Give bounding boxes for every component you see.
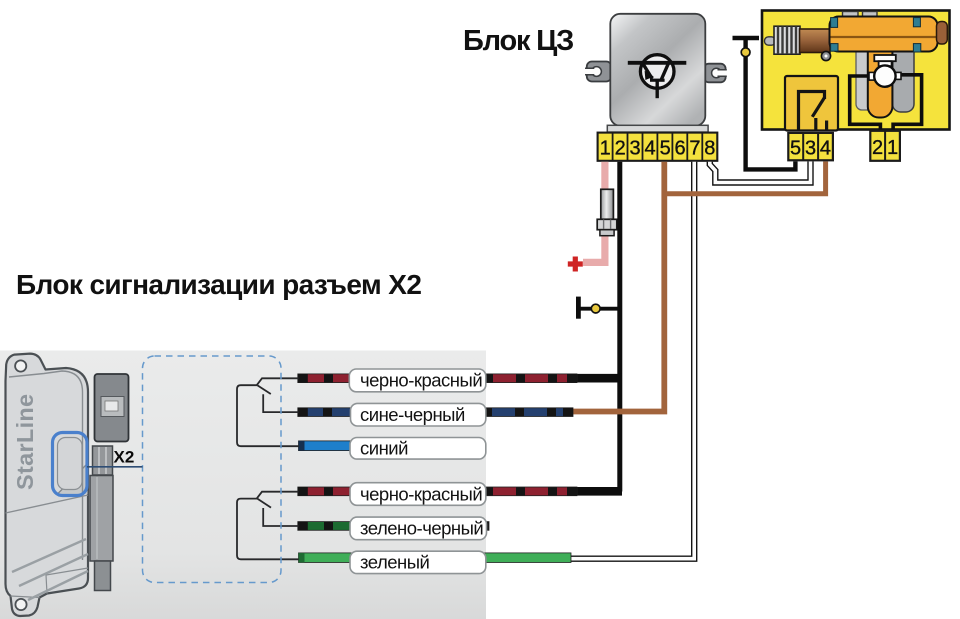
svg-text:2: 2	[615, 138, 626, 160]
svg-text:5: 5	[660, 138, 671, 160]
svg-text:6: 6	[675, 138, 686, 160]
svg-text:Блок ЦЗ: Блок ЦЗ	[463, 25, 573, 57]
svg-text:черно-красный: черно-красный	[360, 483, 482, 504]
svg-text:X2: X2	[114, 448, 135, 467]
svg-text:2: 2	[872, 137, 883, 159]
svg-text:7: 7	[689, 138, 700, 160]
svg-text:черно-красный: черно-красный	[360, 370, 482, 391]
svg-text:зеленый: зеленый	[360, 552, 430, 573]
svg-text:4: 4	[820, 137, 831, 159]
svg-text:8: 8	[704, 138, 715, 160]
svg-text:синий: синий	[360, 438, 408, 459]
svg-text:3: 3	[805, 137, 816, 159]
svg-text:зелено-черный: зелено-черный	[360, 518, 483, 539]
svg-text:3: 3	[630, 138, 641, 160]
svg-text:Блок сигнализации разъем Х2: Блок сигнализации разъем Х2	[16, 269, 421, 300]
svg-text:5: 5	[790, 137, 801, 159]
svg-text:4: 4	[645, 138, 656, 160]
svg-text:сине-черный: сине-черный	[360, 404, 465, 425]
svg-text:StarLine: StarLine	[12, 394, 38, 490]
svg-text:1: 1	[600, 138, 611, 160]
svg-text:1: 1	[887, 137, 898, 159]
